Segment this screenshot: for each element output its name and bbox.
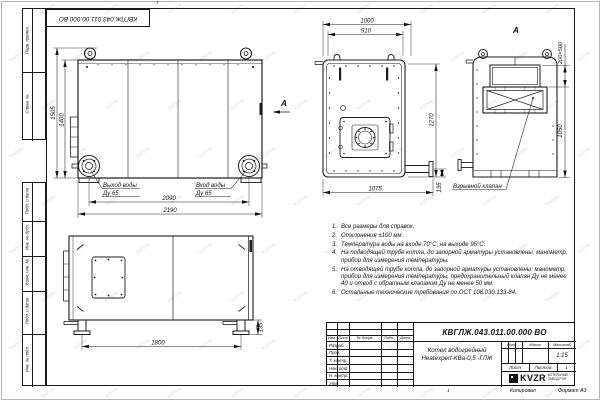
top-stamp-text: КВГЛЖ.043.011.00.000 ВО xyxy=(59,15,137,22)
water-inlet-flange xyxy=(239,156,268,177)
inlet-label: Вход воды xyxy=(196,183,226,189)
view-a: А xyxy=(452,25,569,190)
valve-label: Взрывной клапан xyxy=(453,183,502,190)
tb-role-tkontr: Т. контр. xyxy=(329,358,348,363)
title-block: Изм. Лист № докум. Подп. Дата Разраб. Пр… xyxy=(326,322,575,386)
view-a-left-flange xyxy=(458,160,473,171)
note-item: 5.На отводящей трубе котла, до запорной … xyxy=(332,267,570,289)
tb-role-nachotd: Нач. отд. xyxy=(329,366,348,371)
tb-role-razrab: Разраб. xyxy=(329,343,345,348)
tb-sheet-label: Лист xyxy=(501,363,529,371)
view-a-label: А xyxy=(512,25,519,35)
side-view: 1800 135 xyxy=(64,236,265,350)
margin-label-inv-podl: Инв. № подл. xyxy=(25,346,30,372)
tb-header-data: Дата xyxy=(397,335,413,341)
logo-caption: КОТЕЛЬНЫЙ ЗАВОД РЭП xyxy=(548,374,568,381)
zone-number-bottom: 1 xyxy=(447,388,450,393)
tb-role-utv: Утв. xyxy=(329,381,339,386)
water-outlet-flange xyxy=(72,156,100,177)
tb-header-podp: Подп. xyxy=(381,335,397,341)
side-pipe-flange xyxy=(405,162,433,177)
tb-header-dokum: № докум. xyxy=(349,335,381,341)
dim-viewa-opening: 200×500 xyxy=(558,41,564,65)
dim-plan-910: 910 xyxy=(361,29,372,35)
tb-lit-header: Лит. xyxy=(501,341,522,348)
format-label: Формат А3 xyxy=(558,388,586,394)
tb-header-izm: Изм. xyxy=(327,335,337,341)
margin-label-podp-data-1: Подп. и дата xyxy=(25,188,30,214)
note-item: 6.Остальные технические требования по ОС… xyxy=(332,290,570,297)
tb-header-list: Лист xyxy=(337,335,349,341)
dim-plan-1075: 1075 xyxy=(368,187,382,193)
dim-front-2190: 2190 xyxy=(162,208,177,214)
lifting-eye-icon xyxy=(85,48,252,59)
margin-label-perv-primen: Перв. примен. xyxy=(25,26,30,54)
tb-role-nkontr: Н. контр. xyxy=(329,373,348,378)
dim-front-2090: 2090 xyxy=(161,196,176,202)
margin-label-inv-dubl: Инв. № дубл. xyxy=(25,224,30,250)
tb-sheets-label: Листов xyxy=(529,363,557,371)
access-door xyxy=(92,257,125,298)
dim-plan-1270: 1270 xyxy=(430,113,436,127)
margin-label-vzam-inv: Взам. инв. № xyxy=(25,259,30,285)
dim-side-1800: 1800 xyxy=(151,341,165,347)
tb-scale-value: 1:15 xyxy=(548,348,576,363)
explosion-valve xyxy=(483,87,547,113)
support-legs xyxy=(64,320,249,335)
zone-number-top: 1 xyxy=(156,0,159,5)
copied-label: Копировал xyxy=(510,388,536,394)
drawing-sheet: КЗР.РФКЗР.РФКЗР.РФКЗР.РФКЗР.РФКЗР.РФКЗР.… xyxy=(0,0,600,400)
section-arrow-label: А xyxy=(280,98,287,108)
tb-mass-header: Масса xyxy=(522,341,548,348)
note-item: 1.Все размеры для справок. xyxy=(332,224,570,231)
manufacturer-logo: KVZR КОТЕЛЬНЫЙ ЗАВОД РЭП xyxy=(501,371,576,385)
dim-front-1400: 1400 xyxy=(60,113,66,127)
note-item: 4.На подводящей трубе котла, до запорной… xyxy=(332,250,570,265)
tb-scale-header: Масштаб xyxy=(548,341,576,348)
front-view: 1505 1400 2090 2190 Выход воды Ду 65 Вхо… xyxy=(51,48,290,218)
inlet-size-label: Ду 65 xyxy=(195,191,212,197)
outlet-label: Выход воды xyxy=(103,183,137,189)
margin-label-sprav-no: Справ. № xyxy=(25,94,30,113)
dim-plan-1000: 1000 xyxy=(360,19,374,25)
margin-label-podp-data-2: Подп. и дата xyxy=(25,298,30,324)
outlet-size-label: Ду 65 xyxy=(102,191,119,197)
dim-side-135: 135 xyxy=(259,322,265,333)
dim-viewa-1050: 1050 xyxy=(558,124,564,138)
dim-front-1505: 1505 xyxy=(51,106,57,120)
note-item: 2.Отклонения ±100 мм. xyxy=(332,233,570,240)
note-item: 3.Температура воды на входе 70°С, на вых… xyxy=(332,242,570,249)
tb-doc-number: КВГЛЖ.043.011.00.000 ВО xyxy=(413,323,576,341)
dim-plan-135: 135 xyxy=(437,182,443,193)
logo-text: KVZR xyxy=(520,373,546,383)
plan-view: 1000 910 1270 1075 135 xyxy=(315,19,446,197)
logo-qr-icon xyxy=(509,374,518,383)
tb-sheets-value: 1 xyxy=(557,363,576,371)
tb-product-name: Котел водогрейный Heatexpert-КВа-0,5 -ГЛ… xyxy=(413,341,501,369)
tb-role-prov: Пров. xyxy=(329,350,340,355)
burner-plate xyxy=(339,118,393,158)
top-stamp-box: КВГЛЖ.043.011.00.000 ВО xyxy=(46,9,150,27)
technical-notes: 1.Все размеры для справок. 2.Отклонения … xyxy=(332,224,570,299)
